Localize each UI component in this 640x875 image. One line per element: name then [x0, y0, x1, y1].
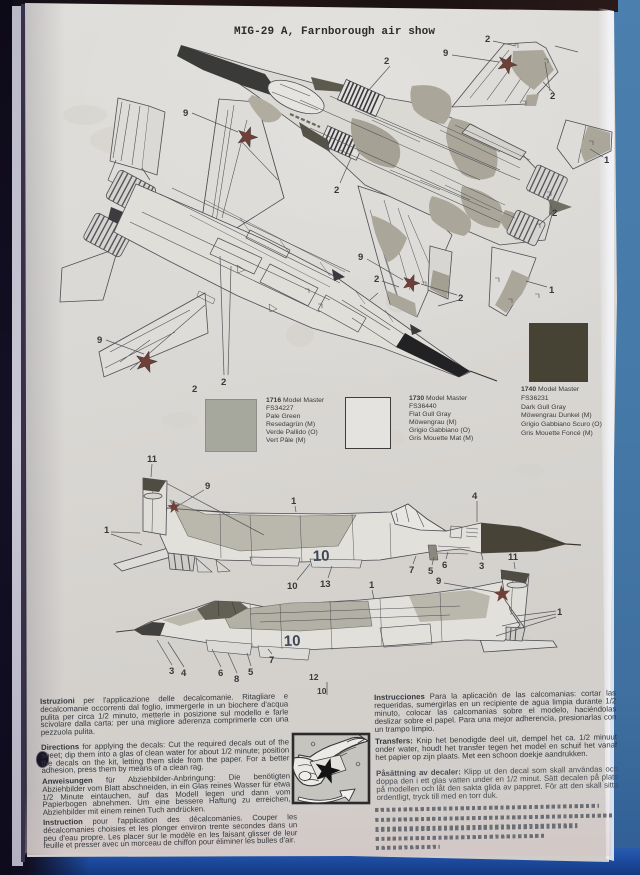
svg-text:5: 5: [428, 566, 434, 577]
svg-text:6: 6: [442, 560, 447, 571]
svg-text:1: 1: [291, 496, 297, 507]
svg-text:9: 9: [97, 335, 102, 346]
svg-text:9: 9: [358, 252, 363, 263]
svg-text:2: 2: [374, 274, 379, 285]
svg-text:7: 7: [409, 565, 414, 576]
svg-text:4: 4: [472, 491, 478, 502]
svg-text:2: 2: [458, 293, 463, 304]
svg-text:2: 2: [384, 56, 389, 67]
svg-text:13: 13: [320, 579, 331, 590]
svg-text:5: 5: [248, 667, 254, 678]
svg-text:10: 10: [313, 547, 330, 565]
svg-text:2: 2: [550, 91, 555, 102]
svg-text:11: 11: [508, 552, 519, 563]
svg-text:1: 1: [104, 525, 110, 536]
svg-text:3: 3: [169, 666, 174, 677]
svg-text:4: 4: [181, 668, 187, 679]
svg-text:2: 2: [552, 208, 557, 219]
svg-text:1: 1: [557, 607, 563, 618]
svg-text:9: 9: [436, 576, 441, 587]
svg-text:9: 9: [443, 48, 448, 59]
svg-text:6: 6: [218, 668, 223, 679]
svg-text:2: 2: [221, 377, 226, 388]
svg-text:1: 1: [369, 580, 375, 591]
svg-text:2: 2: [192, 384, 197, 395]
svg-text:10: 10: [284, 632, 301, 650]
svg-text:2: 2: [485, 34, 490, 45]
svg-text:10: 10: [287, 581, 298, 592]
svg-text:1: 1: [549, 285, 555, 296]
svg-text:8: 8: [234, 674, 239, 685]
svg-text:3: 3: [479, 561, 484, 572]
svg-text:7: 7: [269, 655, 274, 666]
svg-text:2: 2: [334, 185, 339, 196]
svg-text:11: 11: [147, 454, 158, 465]
svg-text:9: 9: [183, 108, 188, 119]
svg-text:1: 1: [604, 155, 610, 166]
svg-text:9: 9: [205, 481, 210, 492]
